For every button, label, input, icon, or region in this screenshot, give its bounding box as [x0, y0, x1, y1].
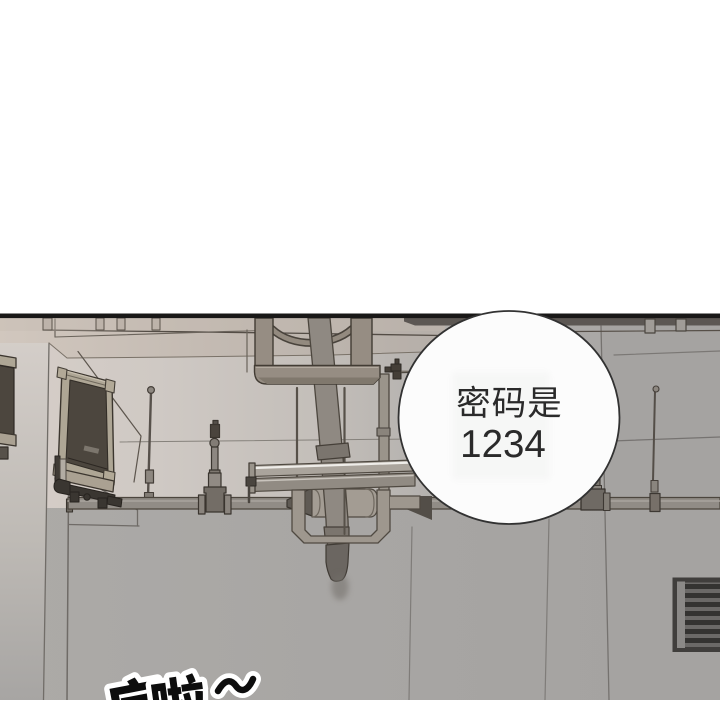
- svg-text:1234: 1234: [460, 423, 546, 466]
